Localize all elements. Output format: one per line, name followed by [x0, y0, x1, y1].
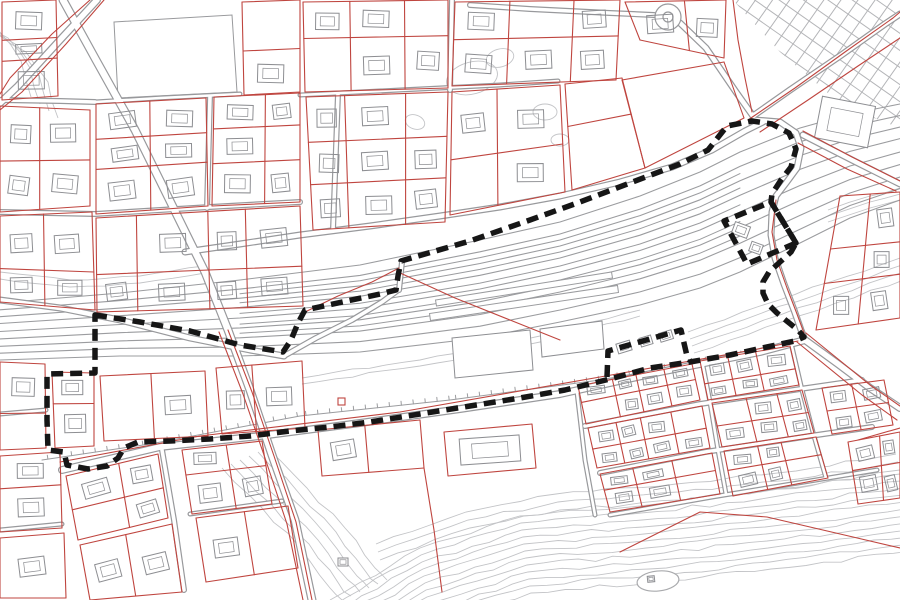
contour-layer — [0, 15, 900, 600]
map-viewport — [0, 0, 900, 600]
ground-layer — [114, 15, 237, 98]
map-canvas[interactable] — [0, 0, 900, 600]
